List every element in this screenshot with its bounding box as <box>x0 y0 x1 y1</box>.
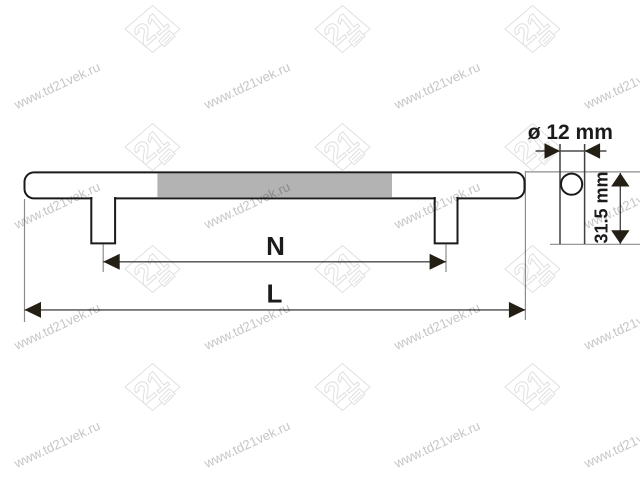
svg-text:N: N <box>266 231 285 261</box>
